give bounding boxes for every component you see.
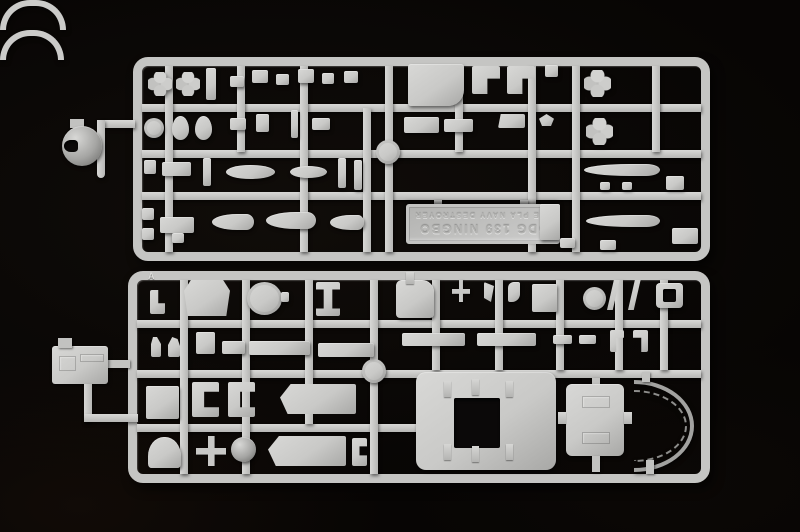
part-block-detail	[80, 354, 104, 362]
part-ring-hole	[663, 289, 676, 302]
part-gun-turret	[396, 280, 434, 318]
part-yardarm-mast	[196, 436, 226, 466]
part-flat-panel	[532, 284, 557, 312]
sprue-bottom-group: A	[0, 0, 800, 532]
part-stern-deck	[566, 384, 624, 456]
part-deck-stud	[444, 444, 451, 460]
part-deck-strip	[318, 343, 374, 357]
part-disc	[583, 287, 606, 310]
part-deck-opening	[454, 398, 500, 448]
part-deck-strip	[222, 341, 245, 354]
part-small-block	[553, 335, 572, 344]
part-deck-detail	[582, 432, 610, 444]
part-deck-strip	[402, 333, 465, 346]
photo-model-kit-sprues: DDG 139 NINGBO THE PLA NAVY DESTROYER A	[0, 0, 800, 532]
runner-h	[84, 414, 138, 422]
part-round-junction-disc	[362, 359, 386, 383]
part-dome-turret	[148, 437, 181, 468]
part-small-tab	[281, 292, 289, 302]
part-funnel	[184, 280, 230, 316]
part-radar-ball	[231, 437, 256, 462]
part-gun-barrel	[406, 272, 414, 284]
part-square-plate	[146, 386, 179, 419]
sprue-letter-label: A	[148, 271, 155, 281]
part-deck-stud	[472, 446, 479, 462]
part-superstructure-block	[52, 346, 108, 384]
runner-v	[556, 280, 564, 370]
part-hook-piece	[508, 282, 520, 302]
part-deck-tab	[558, 412, 566, 424]
part-deck-detail	[582, 396, 610, 408]
part-small-block	[196, 332, 215, 354]
part-main-deck	[416, 372, 556, 470]
part-small-block	[579, 335, 596, 344]
part-superstructure-side	[280, 384, 356, 414]
part-deck-stud	[506, 444, 513, 460]
part-deck-strip	[477, 333, 536, 346]
runner-v	[495, 280, 503, 370]
part-round-dome	[247, 282, 282, 315]
part-cross-mast	[452, 280, 470, 302]
part-railing-teeth	[634, 390, 687, 462]
part-frame-ring	[656, 283, 683, 308]
part-sprue-gate	[106, 360, 130, 368]
part-superstructure-side	[268, 436, 346, 466]
part-sprue-gate	[646, 460, 654, 474]
part-small-nub	[58, 338, 72, 348]
part-deck-stud	[472, 379, 479, 395]
part-sprue-gate	[642, 372, 650, 382]
part-deck-stud	[506, 381, 513, 397]
part-deck-strip	[249, 341, 310, 355]
part-block-window	[59, 356, 76, 371]
part-sprue-gate	[592, 456, 600, 472]
part-deck-stud	[444, 381, 451, 397]
part-deck-tab	[624, 412, 632, 424]
